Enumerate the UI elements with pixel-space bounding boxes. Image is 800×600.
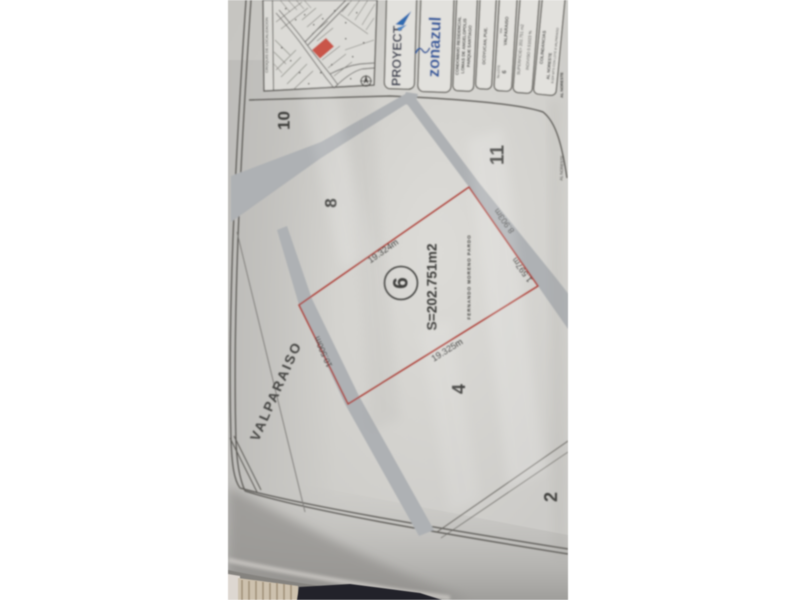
svg-text:CROQUIS DE LOCALIZACION: CROQUIS DE LOCALIZACION bbox=[264, 17, 269, 73]
svg-text:No LOTE: No LOTE bbox=[496, 65, 501, 79]
svg-text:10: 10 bbox=[275, 111, 294, 130]
svg-text:6: 6 bbox=[390, 277, 413, 289]
svg-text:zonazul: zonazul bbox=[425, 16, 445, 77]
svg-text:PROYECT: PROYECT bbox=[389, 25, 405, 86]
svg-text:S=202.751m2: S=202.751m2 bbox=[425, 243, 440, 330]
svg-text:AL NORESTE: AL NORESTE bbox=[559, 72, 564, 98]
svg-text:FERNANDO MORENO PARDO: FERNANDO MORENO PARDO bbox=[467, 234, 473, 319]
